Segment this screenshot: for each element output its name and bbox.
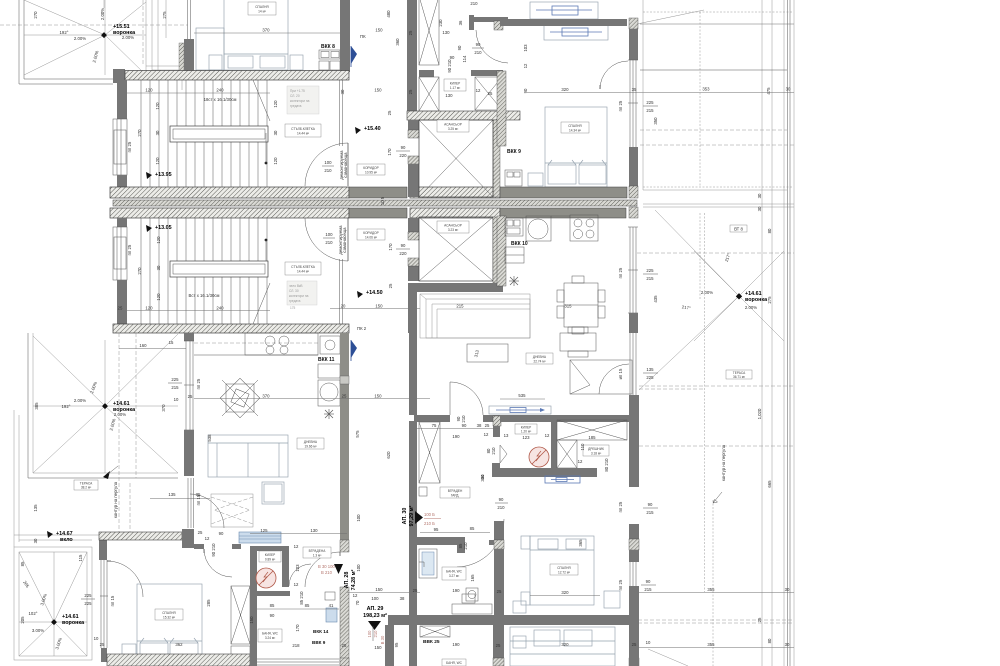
svg-text:95: 95 [394, 642, 399, 647]
svg-text:пп 25: пп 25 [618, 579, 623, 590]
svg-text:90: 90 [646, 579, 651, 584]
svg-text:240: 240 [216, 88, 224, 93]
svg-text:2.00%: 2.00% [745, 305, 757, 310]
svg-text:25: 25 [632, 642, 637, 647]
svg-text:30: 30 [33, 538, 38, 543]
svg-text:120: 120 [155, 157, 160, 165]
svg-text:ВКК 8: ВКК 8 [321, 44, 335, 50]
svg-text:самоносеща: самоносеща [342, 227, 347, 253]
svg-text:135: 135 [646, 367, 654, 372]
svg-text:пп 25: пп 25 [127, 244, 132, 255]
svg-text:275: 275 [162, 11, 167, 19]
svg-text:210: 210 [497, 505, 505, 510]
svg-text:30: 30 [273, 130, 278, 135]
svg-text:135: 135 [33, 504, 38, 512]
svg-text:25: 25 [342, 643, 347, 648]
svg-text:12: 12 [484, 432, 489, 437]
svg-text:+13.95: +13.95 [155, 172, 172, 178]
svg-text:10: 10 [646, 640, 651, 645]
svg-text:210: 210 [461, 415, 466, 423]
svg-text:225: 225 [171, 377, 179, 382]
svg-text:25: 25 [342, 394, 347, 399]
svg-text:90: 90 [401, 145, 406, 150]
svg-text:220: 220 [399, 251, 407, 256]
svg-text:215: 215 [456, 304, 464, 309]
svg-text:85 210: 85 210 [299, 591, 304, 605]
svg-text:210: 210 [491, 447, 496, 455]
svg-text:90 210: 90 210 [447, 59, 452, 73]
svg-text:контур на пергула: контур на пергула [113, 481, 118, 518]
svg-text:30: 30 [757, 206, 762, 211]
svg-text:190: 190 [452, 434, 460, 439]
svg-text:СТЪЛБ.КЛЕТКА: СТЪЛБ.КЛЕТКА [291, 265, 316, 269]
svg-text:КИЛЕР: КИЛЕР [265, 553, 276, 557]
svg-text:АП. 28: АП. 28 [344, 572, 350, 589]
svg-text:355: 355 [707, 642, 715, 647]
svg-text:38: 38 [400, 596, 405, 601]
svg-text:ВКК 11: ВКК 11 [318, 357, 335, 363]
svg-text:30: 30 [340, 89, 345, 94]
svg-text:123: 123 [522, 435, 530, 440]
svg-text:10: 10 [94, 636, 99, 641]
svg-text:3.24 м²: 3.24 м² [265, 636, 275, 640]
svg-text:120: 120 [155, 102, 160, 110]
svg-text:3.18 м²: 3.18 м² [591, 452, 601, 456]
svg-text:205: 205 [20, 616, 25, 624]
svg-text:370: 370 [262, 28, 270, 33]
svg-text:70: 70 [355, 600, 360, 605]
svg-text:12: 12 [294, 582, 299, 587]
svg-text:АП. 30: АП. 30 [402, 508, 408, 525]
svg-text:120: 120 [145, 88, 153, 93]
svg-text:20: 20 [341, 304, 346, 309]
svg-text:СЛ. 30: СЛ. 30 [289, 289, 299, 293]
svg-text:0.89 м²: 0.89 м² [265, 558, 275, 562]
svg-text:150: 150 [375, 28, 383, 33]
svg-text:210: 210 [470, 1, 478, 6]
svg-text:130: 130 [445, 93, 453, 98]
svg-text:30: 30 [757, 193, 762, 198]
svg-text:контур на пергула: контур на пергула [721, 444, 726, 481]
svg-text:АП. 29: АП. 29 [367, 606, 384, 612]
svg-text:215: 215 [644, 587, 652, 592]
svg-text:90: 90 [499, 497, 504, 502]
svg-text:пп 25: пп 25 [618, 501, 623, 512]
svg-text:100: 100 [324, 160, 332, 165]
svg-text:ВГРАДЕНА: ВГРАДЕНА [309, 549, 327, 553]
svg-text:30: 30 [786, 87, 791, 92]
svg-text:355: 355 [707, 587, 715, 592]
svg-text:102°: 102° [29, 611, 38, 616]
svg-text:135: 135 [168, 492, 176, 497]
svg-text:12: 12 [545, 433, 550, 438]
svg-text:80 210: 80 210 [604, 458, 609, 472]
svg-text:25: 25 [408, 30, 413, 35]
svg-text:225: 225 [84, 601, 92, 606]
svg-text:10: 10 [174, 397, 179, 402]
svg-text:185: 185 [588, 435, 596, 440]
svg-text:25: 25 [198, 530, 203, 535]
svg-text:25: 25 [413, 588, 418, 593]
svg-text:480: 480 [386, 10, 391, 18]
svg-text:620: 620 [386, 451, 391, 459]
svg-text:25: 25 [496, 643, 501, 648]
svg-text:170: 170 [387, 148, 392, 156]
svg-text:воронка: воронка [745, 297, 768, 303]
svg-text:125: 125 [260, 528, 268, 533]
svg-text:36: 36 [458, 20, 463, 25]
svg-text:210: 210 [463, 542, 468, 550]
svg-text:1.3 м²: 1.3 м² [313, 554, 322, 558]
svg-text:12: 12 [205, 536, 210, 541]
svg-text:285: 285 [206, 599, 211, 607]
svg-text:215: 215 [171, 385, 179, 390]
svg-text:90: 90 [476, 42, 481, 47]
svg-text:пп 25: пп 25 [618, 267, 623, 278]
svg-text:ВТ 8: ВТ 8 [734, 227, 743, 232]
svg-text:СПАЛНЯ: СПАЛНЯ [162, 611, 176, 615]
svg-text:Вст х 16.1/30см: Вст х 16.1/30см [189, 293, 220, 298]
svg-text:535: 535 [518, 393, 526, 398]
svg-text:В 30: В 30 [380, 635, 385, 644]
svg-text:14.06 м²: 14.06 м² [365, 236, 377, 240]
svg-text:25: 25 [497, 589, 502, 594]
svg-text:95: 95 [434, 527, 439, 532]
svg-text:10.95 м²: 10.95 м² [365, 171, 377, 175]
svg-text:210 Б: 210 Б [424, 521, 435, 526]
svg-text:2.00%: 2.00% [74, 398, 86, 403]
svg-text:120: 120 [156, 293, 161, 301]
svg-text:41: 41 [329, 603, 334, 608]
svg-text:3.27 м²: 3.27 м² [449, 574, 459, 578]
svg-text:110: 110 [580, 443, 585, 450]
svg-text:ДРЕШНИК: ДРЕШНИК [588, 447, 604, 451]
svg-text:320: 320 [561, 642, 569, 647]
svg-text:210: 210 [324, 168, 332, 173]
svg-text:150: 150 [374, 394, 382, 399]
svg-text:+15.40: +15.40 [364, 126, 381, 132]
svg-text:85: 85 [20, 561, 25, 566]
svg-text:2.00%: 2.00% [100, 8, 105, 20]
svg-text:120: 120 [156, 236, 161, 244]
svg-text:3.23 м²: 3.23 м² [448, 228, 458, 232]
svg-text:ДНЕВНА: ДНЕВНА [533, 355, 547, 359]
svg-text:220: 220 [399, 153, 407, 158]
svg-text:120: 120 [273, 157, 278, 165]
svg-text:БАНЯ, WC: БАНЯ, WC [446, 570, 463, 574]
svg-text:ВКК 9: ВКК 9 [507, 149, 521, 155]
svg-text:120: 120 [273, 100, 278, 108]
svg-text:2.00%: 2.00% [74, 36, 86, 41]
svg-text:360: 360 [395, 38, 400, 46]
svg-text:85: 85 [470, 526, 475, 531]
svg-text:1.20 м²: 1.20 м² [521, 430, 531, 434]
svg-text:100: 100 [367, 630, 372, 638]
svg-text:30: 30 [785, 587, 790, 592]
svg-text:14 м²: 14 м² [258, 10, 266, 14]
svg-text:25: 25 [388, 283, 393, 288]
svg-text:435: 435 [653, 295, 658, 303]
svg-text:АСАНСЬОР: АСАНСЬОР [444, 123, 462, 127]
svg-text:30: 30 [156, 265, 161, 270]
svg-text:275: 275 [767, 296, 772, 304]
svg-text:370: 370 [262, 394, 270, 399]
svg-text:320: 320 [561, 590, 569, 595]
svg-text:14.44 м²: 14.44 м² [297, 270, 309, 274]
svg-text:80: 80 [767, 638, 772, 643]
svg-text:ДНЕВНА: ДНЕВНА [304, 440, 318, 444]
svg-text:ВКК 10: ВКК 10 [511, 241, 528, 247]
svg-text:ип 15: ип 15 [618, 368, 623, 379]
svg-text:270: 270 [137, 267, 142, 275]
svg-text:350: 350 [653, 117, 658, 125]
svg-text:353: 353 [702, 87, 710, 92]
svg-text:ВКК 14: ВКК 14 [313, 629, 329, 634]
svg-text:ПК: ПК [360, 34, 366, 39]
svg-text:198,23 м²: 198,23 м² [363, 613, 387, 619]
svg-text:14.44 м²: 14.44 м² [297, 132, 309, 136]
svg-text:воронка: воронка [62, 620, 85, 626]
svg-text:90: 90 [523, 88, 528, 93]
svg-text:270: 270 [33, 11, 38, 19]
svg-text:170: 170 [388, 243, 393, 251]
svg-text:СЛ. 20: СЛ. 20 [290, 94, 300, 98]
svg-text:36.71 м²: 36.71 м² [733, 375, 745, 379]
svg-text:130: 130 [310, 528, 318, 533]
svg-text:225: 225 [646, 100, 654, 105]
svg-text:БАНЯ, WC: БАНЯ, WC [446, 661, 463, 665]
svg-text:АСАНСЬОР: АСАНСЬОР [444, 224, 462, 228]
svg-text:гредата: гредата [289, 299, 301, 303]
svg-text:90 210: 90 210 [211, 543, 216, 557]
svg-text:160: 160 [139, 343, 147, 348]
svg-text:35: 35 [632, 87, 637, 92]
svg-text:175: 175 [290, 306, 296, 310]
svg-text:15: 15 [169, 340, 174, 345]
svg-text:1,020: 1,020 [757, 408, 762, 419]
svg-text:97,29 м²: 97,29 м² [409, 505, 415, 526]
svg-text:150: 150 [249, 616, 254, 624]
svg-text:114: 114 [462, 55, 467, 62]
svg-text:85: 85 [270, 603, 275, 608]
svg-text:100: 100 [356, 564, 361, 572]
svg-text:210: 210 [325, 240, 333, 245]
svg-text:25: 25 [408, 89, 413, 94]
svg-text:38: 38 [477, 423, 482, 428]
svg-text:12: 12 [578, 459, 583, 464]
svg-text:гредата: гредата [290, 104, 302, 108]
svg-text:215: 215 [646, 276, 654, 281]
svg-text:ВВК 9: ВВК 9 [312, 640, 326, 645]
svg-text:12: 12 [476, 88, 481, 93]
svg-text:85: 85 [305, 603, 310, 608]
svg-text:80: 80 [767, 228, 772, 233]
svg-text:215: 215 [646, 510, 654, 515]
svg-text:25: 25 [188, 394, 193, 399]
svg-text:103: 103 [523, 44, 528, 52]
svg-text:38.2 м²: 38.2 м² [81, 486, 91, 490]
svg-text:18ст х 16.1/30см: 18ст х 16.1/30см [204, 97, 237, 102]
svg-text:пп 25: пп 25 [196, 378, 201, 389]
svg-text:90: 90 [219, 531, 224, 536]
svg-text:100: 100 [356, 514, 361, 522]
svg-text:210: 210 [373, 630, 378, 638]
svg-text:22.74 м²: 22.74 м² [533, 360, 545, 364]
svg-text:25: 25 [757, 617, 762, 622]
svg-text:пп 25: пп 25 [618, 100, 623, 111]
svg-text:90: 90 [270, 613, 275, 618]
svg-text:12: 12 [523, 63, 528, 68]
svg-text:75: 75 [432, 423, 437, 428]
svg-text:270: 270 [137, 129, 142, 137]
svg-text:3.00%: 3.00% [32, 628, 44, 633]
svg-text:2.00%: 2.00% [114, 412, 126, 417]
svg-text:12.72 м²: 12.72 м² [558, 571, 570, 575]
svg-text:25: 25 [100, 642, 105, 647]
svg-text:225: 225 [646, 268, 654, 273]
svg-text:КОРИДОР: КОРИДОР [363, 166, 378, 170]
svg-text:320: 320 [561, 87, 569, 92]
svg-text:12: 12 [294, 544, 299, 549]
svg-text:30: 30 [155, 130, 160, 135]
svg-text:90: 90 [401, 243, 406, 248]
svg-text:225: 225 [84, 593, 92, 598]
svg-text:СТЪЛБ.КЛЕТКА: СТЪЛБ.КЛЕТКА [291, 127, 316, 131]
svg-text:15.32 м²: 15.32 м² [163, 616, 175, 620]
svg-text:100: 100 [325, 232, 333, 237]
svg-text:192°: 192° [62, 404, 71, 409]
svg-text:В 210: В 210 [321, 570, 333, 575]
svg-text:25: 25 [485, 423, 490, 428]
svg-text:12: 12 [353, 593, 358, 598]
svg-text:385: 385 [34, 402, 39, 410]
svg-text:+13.05: +13.05 [155, 225, 172, 231]
svg-text:165: 165 [470, 574, 475, 582]
svg-text:170: 170 [295, 624, 300, 632]
svg-text:БАНЯ, WC: БАНЯ, WC [262, 632, 279, 636]
svg-text:ВГРАДЕН: ВГРАДЕН [448, 489, 463, 493]
svg-text:130: 130 [442, 30, 450, 35]
svg-text:ВВК 25: ВВК 25 [423, 639, 440, 645]
svg-text:СПАЛНЯ: СПАЛНЯ [557, 566, 571, 570]
svg-text:90: 90 [462, 423, 467, 428]
svg-text:25: 25 [387, 110, 392, 115]
svg-text:пп 25: пп 25 [127, 141, 132, 152]
svg-text:218: 218 [292, 643, 300, 648]
svg-text:100 Б: 100 Б [424, 512, 435, 517]
svg-text:90: 90 [457, 45, 462, 50]
svg-text:362: 362 [175, 642, 183, 647]
svg-text:2.00%: 2.00% [122, 35, 134, 40]
svg-text:575: 575 [355, 430, 360, 438]
svg-text:10 5: 10 5 [380, 196, 385, 205]
svg-text:150: 150 [375, 587, 383, 592]
svg-text:2.00%: 2.00% [701, 290, 713, 295]
svg-text:210: 210 [474, 50, 482, 55]
svg-text:665: 665 [767, 480, 772, 488]
svg-text:115: 115 [78, 554, 83, 561]
svg-text:пп 15: пп 15 [196, 494, 201, 505]
svg-text:230: 230 [438, 19, 443, 27]
svg-text:При +1.75: При +1.75 [290, 89, 305, 93]
svg-text:315: 315 [564, 304, 572, 309]
svg-text:вкло: вкло [60, 537, 73, 543]
svg-text:150: 150 [374, 88, 382, 93]
svg-text:19.66 м²: 19.66 м² [304, 445, 316, 449]
svg-text:90: 90 [450, 55, 455, 60]
svg-text:30: 30 [785, 642, 790, 647]
svg-text:538: 538 [207, 434, 212, 442]
svg-text:150: 150 [375, 304, 383, 309]
svg-text:240: 240 [216, 306, 224, 311]
svg-text:215: 215 [646, 108, 654, 113]
svg-text:25: 25 [118, 306, 123, 311]
svg-text:чело ВкВ: чело ВкВ [289, 284, 303, 288]
svg-text:365: 365 [578, 539, 583, 547]
svg-text:44: 44 [480, 474, 485, 479]
svg-text:колектори на: колектори на [290, 99, 310, 103]
svg-text:192°: 192° [60, 30, 69, 35]
svg-text:КИЛЕР: КИЛЕР [450, 82, 461, 86]
svg-text:+14.50: +14.50 [366, 290, 383, 296]
svg-text:ПК 2: ПК 2 [357, 326, 367, 331]
svg-text:КОРИДОР: КОРИДОР [363, 231, 378, 235]
svg-text:90: 90 [648, 502, 653, 507]
svg-text:пп 15: пп 15 [110, 595, 115, 606]
svg-text:1.17 м²: 1.17 м² [450, 86, 460, 90]
svg-text:СПАЛНЯ: СПАЛНЯ [568, 124, 582, 128]
svg-text:150: 150 [374, 645, 382, 650]
svg-text:190: 190 [452, 642, 460, 647]
svg-text:475: 475 [766, 87, 771, 95]
svg-text:СПАЛНЯ: СПАЛНЯ [255, 5, 269, 9]
svg-text:13: 13 [504, 433, 509, 438]
svg-text:3.25 м²: 3.25 м² [448, 127, 458, 131]
svg-text:колектори на: колектори на [289, 294, 309, 298]
svg-text:225: 225 [646, 375, 654, 380]
svg-text:370: 370 [161, 404, 166, 412]
svg-text:В 30 100: В 30 100 [318, 564, 335, 569]
svg-text:ГАРД.: ГАРД. [451, 494, 460, 498]
svg-text:самоносеща: самоносеща [343, 152, 348, 178]
svg-text:120: 120 [145, 306, 153, 311]
svg-text:190: 190 [452, 588, 460, 593]
svg-text:14.34 м²: 14.34 м² [569, 129, 581, 133]
svg-text:100: 100 [371, 596, 379, 601]
